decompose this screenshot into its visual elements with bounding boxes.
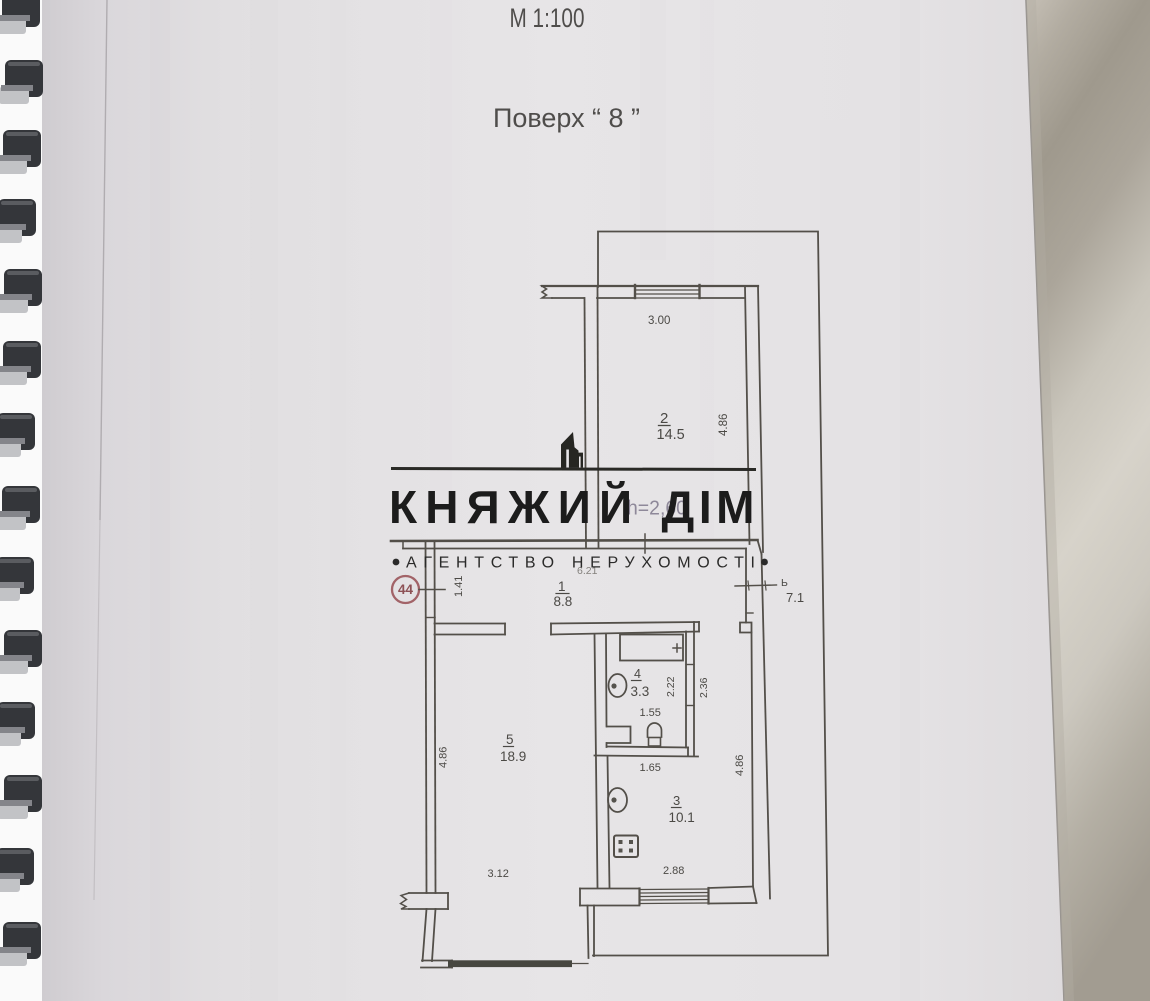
- svg-text:4.86: 4.86: [438, 747, 450, 768]
- svg-text:4.86: 4.86: [718, 414, 730, 436]
- svg-text:5: 5: [506, 732, 514, 747]
- svg-text:8.8: 8.8: [554, 594, 573, 609]
- svg-text:1.55: 1.55: [640, 707, 661, 719]
- svg-text:3: 3: [673, 793, 680, 808]
- svg-text:3.00: 3.00: [648, 315, 670, 327]
- svg-text:1.65: 1.65: [640, 762, 661, 774]
- svg-text:3.3: 3.3: [631, 684, 650, 699]
- svg-text:2: 2: [660, 410, 668, 427]
- svg-text:2.36: 2.36: [698, 677, 710, 698]
- svg-text:4.86: 4.86: [734, 755, 746, 776]
- svg-text:1.41: 1.41: [453, 576, 465, 597]
- svg-text:ДІМ: ДІМ: [662, 481, 755, 533]
- svg-text:2.22: 2.22: [665, 676, 677, 697]
- svg-text:44: 44: [398, 582, 414, 597]
- svg-text:1: 1: [558, 579, 566, 594]
- svg-text:18.9: 18.9: [500, 749, 526, 764]
- svg-text:Поверх “ 8 ”: Поверх “ 8 ”: [493, 103, 640, 133]
- svg-text:2.88: 2.88: [663, 865, 684, 877]
- svg-text:Ь: Ь: [781, 577, 788, 589]
- svg-text:М 1:100: М 1:100: [510, 3, 585, 33]
- svg-text:7.1: 7.1: [786, 590, 804, 605]
- svg-text:4: 4: [634, 667, 641, 681]
- svg-text:3.12: 3.12: [488, 868, 509, 880]
- svg-text:14.5: 14.5: [657, 427, 685, 443]
- svg-text:10.1: 10.1: [669, 810, 695, 825]
- svg-text:АГЕНТСТВО НЕРУХОМОСТІ: АГЕНТСТВО НЕРУХОМОСТІ: [406, 555, 755, 572]
